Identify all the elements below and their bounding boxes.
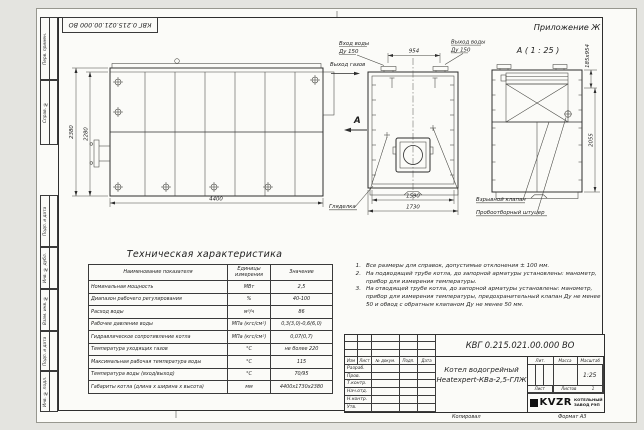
note-number: 1. bbox=[352, 263, 361, 271]
spec-cell-units: МПа (кгс/см²) bbox=[228, 318, 271, 331]
spec-row: Номинальная мощность МВт 2,5 bbox=[89, 281, 333, 294]
front-view: 954 1590 1730 Вход воды Ду 150 bbox=[329, 40, 486, 216]
company-name-line2: ЗАВОД РЭП bbox=[574, 403, 603, 408]
spec-cell-value: 0,07(0,7) bbox=[271, 331, 333, 344]
sampling-fitting-text: Пробоотборный штуцер bbox=[476, 210, 545, 216]
spec-cell-value: 70/95 bbox=[271, 368, 333, 381]
drawing-sheet-scan: Перв. примен. Справ. № Подп. и дата Инв.… bbox=[0, 0, 644, 430]
spec-cell-units: °С bbox=[228, 368, 271, 381]
water-outlet-label: Выход воды bbox=[451, 40, 486, 46]
dim-1590: 1590 bbox=[406, 194, 420, 200]
dim-section-height: 2055 bbox=[584, 88, 600, 192]
mass-label: Масса bbox=[554, 357, 578, 365]
dim-flue: 185х954 bbox=[584, 44, 597, 88]
title-block: Изм Лист № докум. Подп. Дата Разраб. Про… bbox=[344, 334, 605, 413]
logo-square-icon bbox=[530, 399, 538, 407]
note-item: 3. На отводящей трубе котла, до запорной… bbox=[352, 286, 604, 309]
water-outlet-dn-label: Ду 150 bbox=[450, 47, 471, 53]
title-block-product-name: Котел водогрейный Heatexpert-КВа-2,5-ГЛЖ bbox=[436, 357, 528, 412]
spec-table: Наименование показателя Единицы измерени… bbox=[88, 264, 333, 394]
spec-row: Температура уходящих газов °С не более 2… bbox=[89, 343, 333, 356]
section-arrow: А bbox=[344, 116, 367, 132]
spec-row: Максимальная рабочая температура воды °С… bbox=[89, 356, 333, 369]
col-izm: Изм bbox=[345, 357, 358, 365]
spec-row: Расход воды м³/ч 86 bbox=[89, 306, 333, 319]
spec-cell-name: Гидравлическое сопротивление котла bbox=[89, 331, 228, 344]
dim-185x954: 185х954 bbox=[585, 44, 591, 68]
spec-cell-value: 2,5 bbox=[271, 281, 333, 294]
sheets-label: Листов bbox=[561, 386, 576, 391]
signature-row-label: Утв. bbox=[345, 404, 372, 412]
spec-cell-units: м³/ч bbox=[228, 306, 271, 319]
spec-cell-units: °С bbox=[228, 343, 271, 356]
spec-cell-name: Максимальная рабочая температура воды bbox=[89, 356, 228, 369]
dim-side-length: 4400 bbox=[110, 197, 323, 208]
spec-cell-units: МПа (кгс/см²) bbox=[228, 331, 271, 344]
col-docnum: № докум. bbox=[372, 357, 400, 365]
spec-header-value: Значение bbox=[271, 265, 333, 281]
spec-cell-value: 115 bbox=[271, 356, 333, 369]
lit-label: Лит. bbox=[528, 357, 554, 365]
signature-row-label: Пров. bbox=[345, 373, 372, 381]
valve-labels: Взрывной клапан Пробоотборный штуцер bbox=[476, 118, 566, 217]
dim-side-heights: 2380 2280 bbox=[69, 68, 108, 196]
side-view: 2380 2280 4400 bbox=[69, 59, 334, 207]
title-block-doc-number: КВГ 0.215.021.00.000 ВО bbox=[436, 335, 604, 357]
spec-cell-units: % bbox=[228, 293, 271, 306]
spec-cell-value: 40-100 bbox=[271, 293, 333, 306]
signature-row-label: Нач.отд. bbox=[345, 388, 372, 396]
spec-row: Температура воды (вход/выход) °С 70/95 bbox=[89, 368, 333, 381]
col-list: Лист bbox=[358, 357, 372, 365]
format-label: Формат А3 bbox=[558, 414, 586, 420]
spec-row: Гидравлическое сопротивление котла МПа (… bbox=[89, 331, 333, 344]
col-data: Дата bbox=[418, 357, 436, 365]
peephole-text: Гляделка bbox=[329, 204, 356, 210]
signature-row-label: Разраб. bbox=[345, 365, 372, 373]
spec-row: Диапазон рабочего регулирования % 40-100 bbox=[89, 293, 333, 306]
bolt-symbols bbox=[113, 75, 320, 192]
title-block-signature-grid: Изм Лист № докум. Подп. Дата Разраб. Про… bbox=[345, 335, 436, 412]
spec-cell-value: 0,3(3,0)-0,6(6,0) bbox=[271, 318, 333, 331]
spec-title: Техническая характеристика bbox=[88, 249, 321, 260]
spec-cell-units: °С bbox=[228, 356, 271, 369]
note-text: На подводящей трубе котла, до запорной а… bbox=[366, 271, 604, 287]
spec-cell-name: Номинальная мощность bbox=[89, 281, 228, 294]
spec-cell-name: Габариты котла (длина х ширина х высота) bbox=[89, 381, 228, 394]
spec-cell-name: Рабочее давление воды bbox=[89, 318, 228, 331]
dim-1730: 1730 bbox=[406, 205, 420, 211]
spec-cell-units: мм bbox=[228, 381, 271, 394]
dim-flange-span: 954 bbox=[388, 49, 440, 64]
dim-2055: 2055 bbox=[589, 133, 595, 147]
note-number: 2. bbox=[352, 271, 361, 287]
logo-text: KVZR bbox=[540, 397, 572, 408]
spec-header-units: Единицы измерения bbox=[228, 265, 271, 281]
gas-outlet-label: Выход газов bbox=[330, 62, 365, 68]
spec-section: Техническая характеристика Наименование … bbox=[88, 249, 321, 394]
copied-label: Копировал bbox=[452, 414, 481, 420]
dim-2380: 2380 bbox=[69, 125, 75, 139]
water-inlet-label: Вход воды bbox=[339, 41, 370, 47]
connection-labels: Вход воды Ду 150 Выход воды Ду 150 Выход… bbox=[330, 40, 486, 76]
product-name-line1: Котел водогрейный bbox=[436, 365, 527, 375]
signature-row-label: Н.контр. bbox=[345, 396, 372, 404]
note-number: 3. bbox=[352, 286, 361, 309]
note-item: 1. Все размеры для справок, допустимые о… bbox=[352, 263, 604, 271]
note-text: Все размеры для справок, допустимые откл… bbox=[366, 263, 604, 271]
dim-954: 954 bbox=[409, 49, 420, 55]
sheets-value: 1 bbox=[592, 386, 595, 391]
section-view: Приложение Ж А ( 1 : 25 ) bbox=[476, 22, 601, 216]
col-podp: Подп. bbox=[400, 357, 418, 365]
explosion-valve-text: Взрывной клапан bbox=[476, 197, 526, 203]
spec-cell-name: Диапазон рабочего регулирования bbox=[89, 293, 228, 306]
signature-row-label: Т.контр. bbox=[345, 380, 372, 388]
spec-cell-name: Расход воды bbox=[89, 306, 228, 319]
spec-cell-units: МВт bbox=[228, 281, 271, 294]
dim-front-widths: 1590 1730 bbox=[368, 190, 458, 215]
spec-cell-value: не более 220 bbox=[271, 343, 333, 356]
note-text: На отводящей трубе котла, до запорной ар… bbox=[366, 286, 604, 309]
company-logo: KVZR КОТЕЛЬНЫЙ ЗАВОД РЭП bbox=[528, 393, 604, 412]
scale-label: Масштаб bbox=[578, 357, 605, 365]
spec-header-name: Наименование показателя bbox=[89, 265, 228, 281]
section-letter-a: А bbox=[353, 116, 361, 126]
product-name-line2: Heatexpert-КВа-2,5-ГЛЖ bbox=[436, 375, 527, 385]
appendix-label: Приложение Ж bbox=[534, 22, 602, 32]
spec-cell-value: 86 bbox=[271, 306, 333, 319]
section-title: А ( 1 : 25 ) bbox=[516, 46, 559, 55]
scale-value: 1:25 bbox=[578, 365, 604, 387]
water-inlet-dn-label: Ду 150 bbox=[338, 49, 359, 55]
spec-cell-name: Температура воды (вход/выход) bbox=[89, 368, 228, 381]
spec-row: Габариты котла (длина х ширина х высота)… bbox=[89, 381, 333, 394]
dim-2280: 2280 bbox=[84, 127, 90, 141]
note-item: 2. На подводящей трубе котла, до запорно… bbox=[352, 271, 604, 287]
sheet-label: Лист bbox=[535, 386, 545, 391]
peephole-label: Гляделка bbox=[329, 186, 373, 210]
dim-4400: 4400 bbox=[209, 197, 223, 203]
notes-list: 1. Все размеры для справок, допустимые о… bbox=[352, 263, 604, 310]
spec-row: Рабочее давление воды МПа (кгс/см²) 0,3(… bbox=[89, 318, 333, 331]
spec-cell-value: 4400х1730х2380 bbox=[271, 381, 333, 394]
spec-cell-name: Температура уходящих газов bbox=[89, 343, 228, 356]
